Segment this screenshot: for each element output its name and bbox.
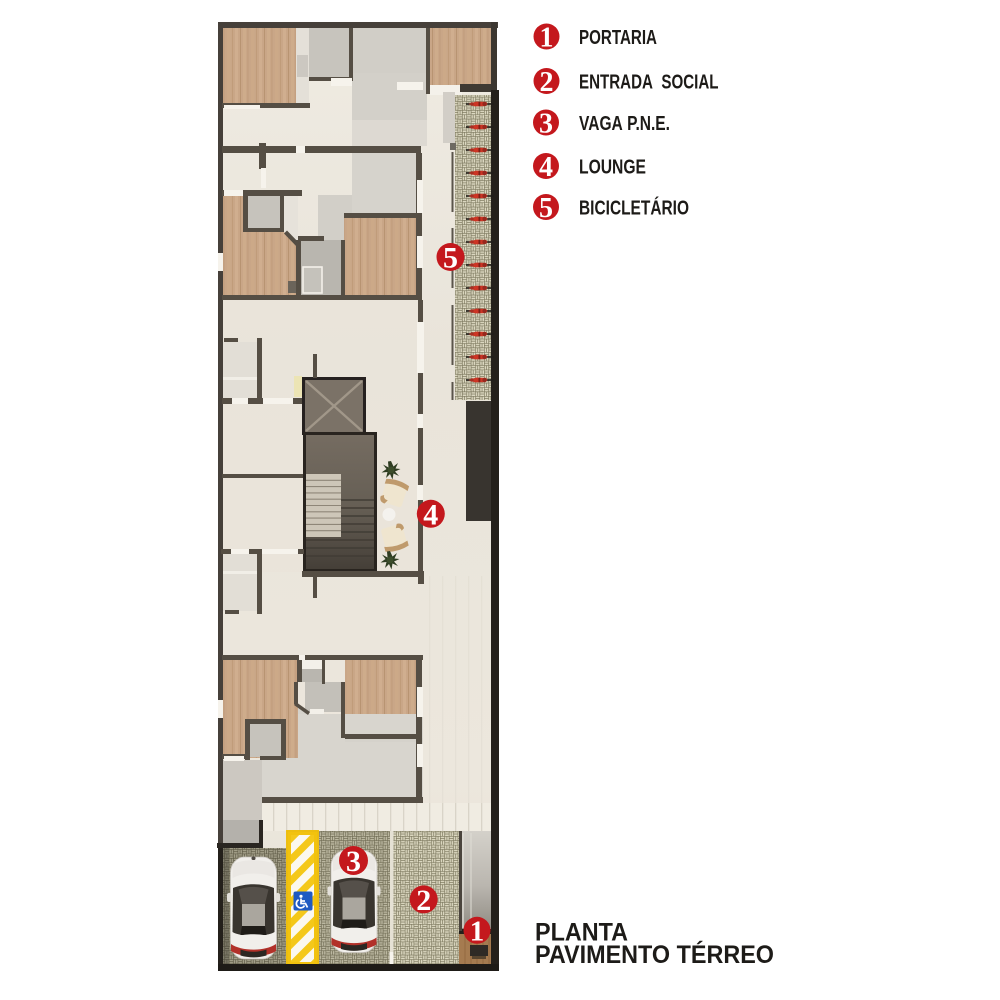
svg-text:LOUNGE: LOUNGE bbox=[579, 156, 646, 178]
svg-text:2: 2 bbox=[416, 884, 431, 917]
svg-text:PORTARIA: PORTARIA bbox=[579, 27, 657, 49]
svg-text:5: 5 bbox=[539, 193, 553, 224]
svg-text:5: 5 bbox=[443, 242, 458, 275]
svg-text:BICICLETÁRIO: BICICLETÁRIO bbox=[579, 196, 689, 219]
svg-text:3: 3 bbox=[346, 845, 361, 878]
svg-text:3: 3 bbox=[539, 108, 553, 139]
svg-text:ENTRADA SOCIAL: ENTRADA SOCIAL bbox=[579, 71, 719, 93]
svg-text:4: 4 bbox=[423, 498, 438, 531]
svg-text:VAGA P.N.E.: VAGA P.N.E. bbox=[579, 113, 670, 135]
svg-text:PAVIMENTO TÉRREO: PAVIMENTO TÉRREO bbox=[535, 940, 774, 969]
svg-text:4: 4 bbox=[539, 152, 553, 183]
svg-text:2: 2 bbox=[540, 67, 554, 98]
svg-text:1: 1 bbox=[540, 22, 554, 53]
svg-text:1: 1 bbox=[470, 916, 485, 948]
